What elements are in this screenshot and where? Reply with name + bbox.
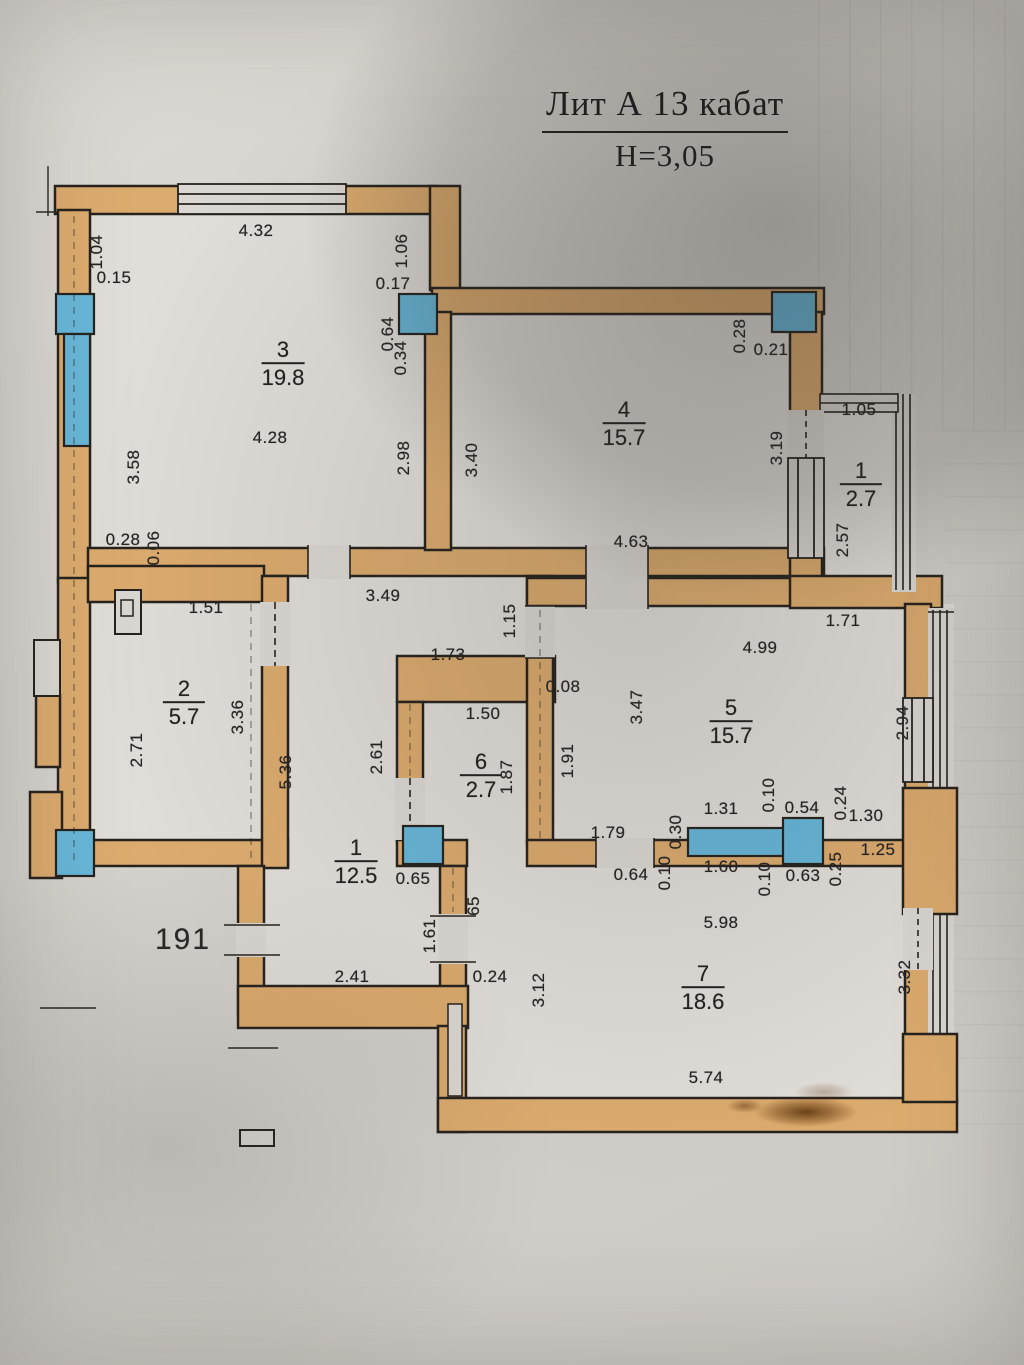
title-line1: Лит А 13 кабат [542,84,788,133]
title-line2: H=3,05 [500,138,830,174]
title-block: Лит А 13 кабат H=3,05 [500,84,830,174]
apartment-number: 191 [155,923,211,957]
floor-plan-photo: 4.321.040.153.584.281.060.170.640.342.98… [0,0,1024,1365]
floor-plan-svg [0,0,1024,1365]
